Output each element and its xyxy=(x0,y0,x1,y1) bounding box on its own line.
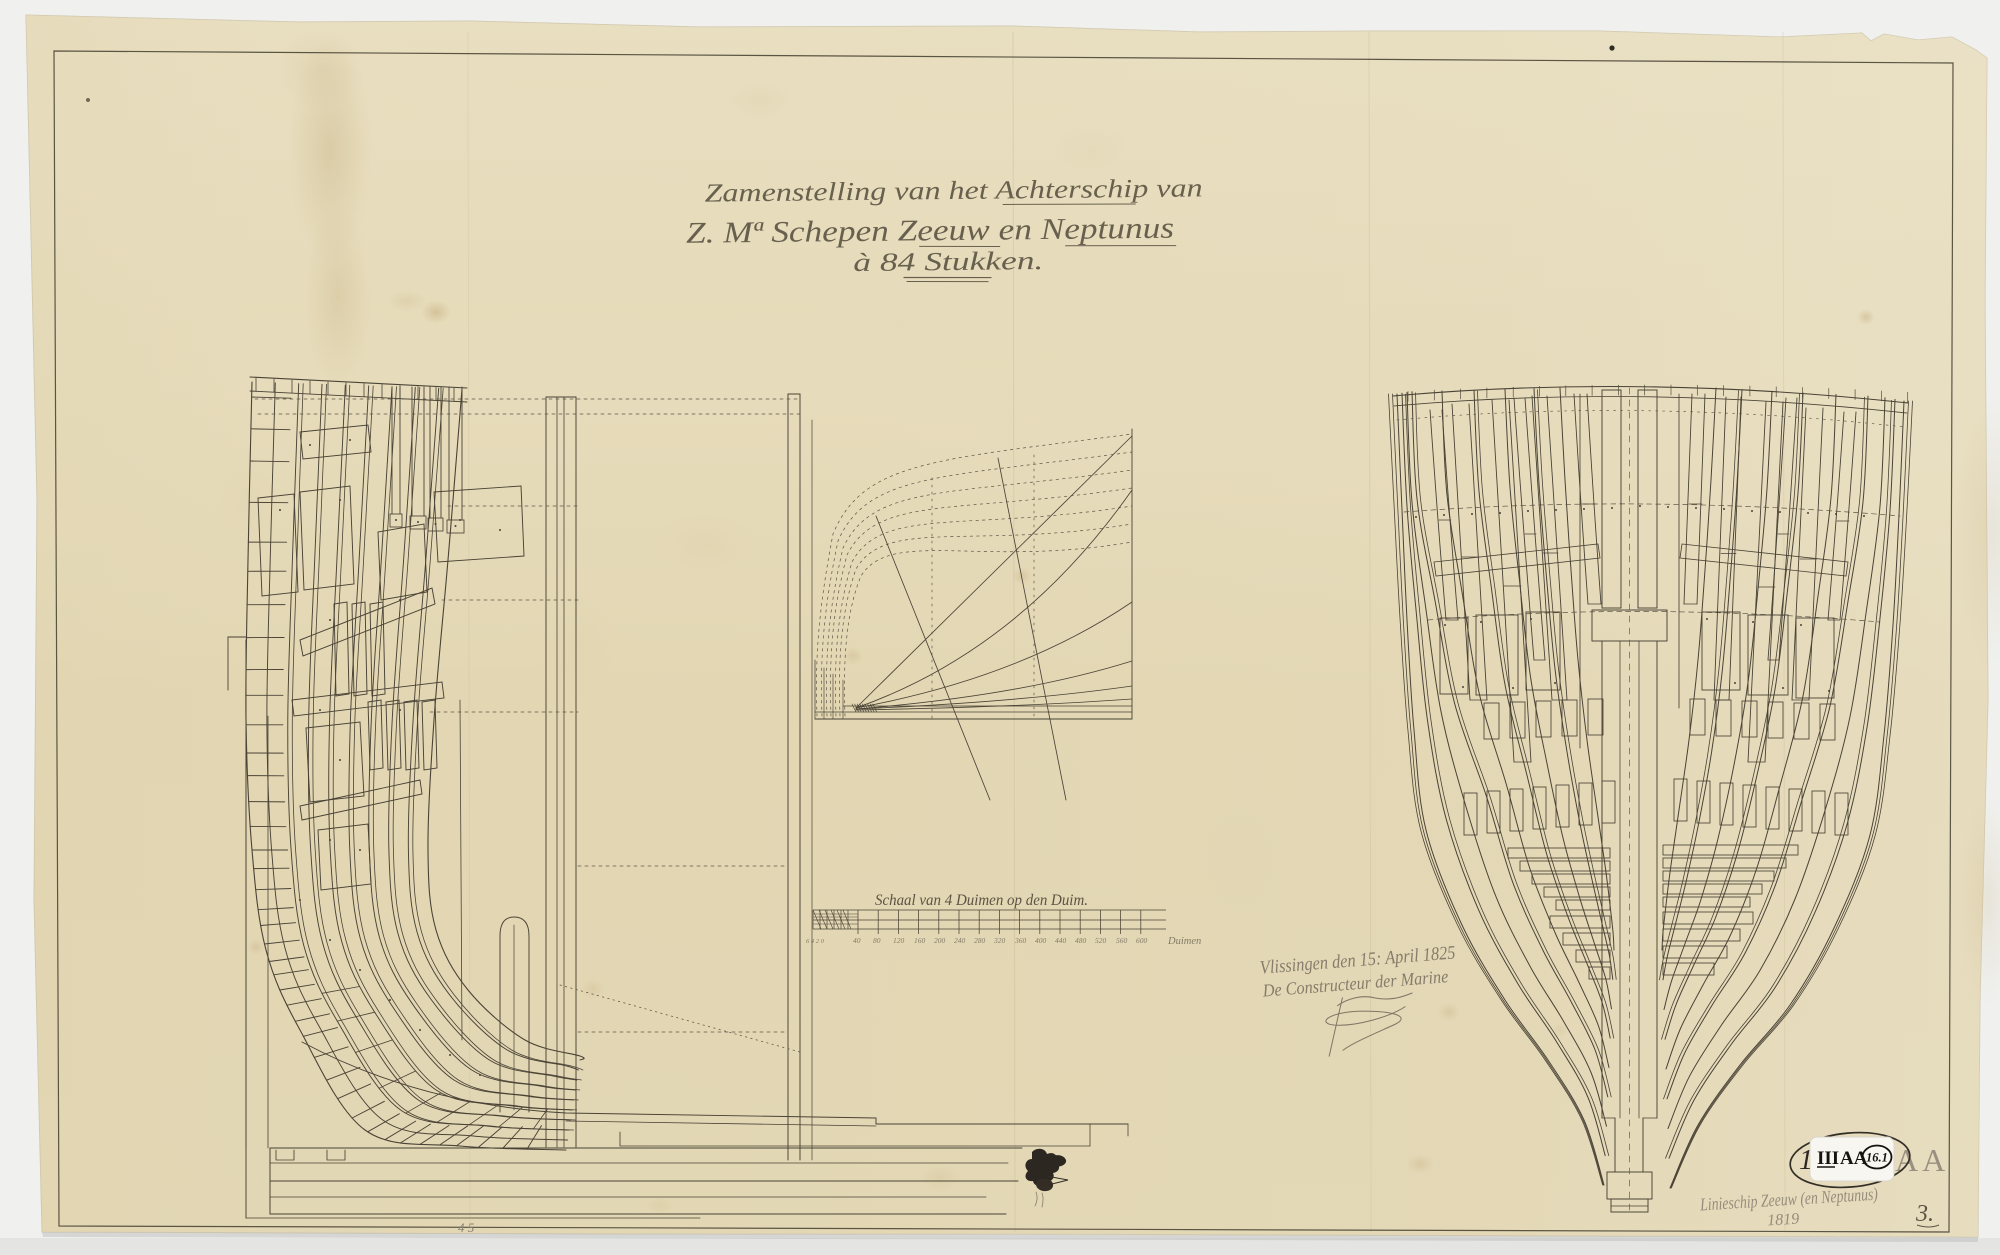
svg-text:80: 80 xyxy=(873,936,881,945)
svg-text:440: 440 xyxy=(1055,936,1067,945)
svg-text:600: 600 xyxy=(1136,936,1148,945)
svg-text:200: 200 xyxy=(934,936,946,945)
svg-text:Zamenstelling van het Achtersc: Zamenstelling van het Achterschip van xyxy=(704,173,1202,207)
svg-text:4 5: 4 5 xyxy=(458,1220,475,1235)
svg-text:40: 40 xyxy=(853,936,861,945)
svg-text:6 4 2 0: 6 4 2 0 xyxy=(806,938,825,945)
svg-text:280: 280 xyxy=(974,936,986,945)
svg-text:160: 160 xyxy=(914,936,926,945)
svg-text:Z. Mª Schepen Zeeuw en Neptunu: Z. Mª Schepen Zeeuw en Neptunus xyxy=(686,212,1174,250)
svg-text:240: 240 xyxy=(954,936,966,945)
svg-text:360: 360 xyxy=(1014,936,1027,945)
svg-text:AA: AA xyxy=(1895,1142,1949,1178)
svg-text:1819: 1819 xyxy=(1767,1210,1800,1229)
svg-text:400: 400 xyxy=(1035,936,1047,945)
svg-text:480: 480 xyxy=(1075,936,1087,945)
svg-text:520: 520 xyxy=(1095,936,1107,945)
svg-text:320: 320 xyxy=(993,936,1006,945)
svg-text:à 84 Stukken.: à 84 Stukken. xyxy=(853,246,1043,277)
svg-text:3.: 3. xyxy=(1915,1201,1934,1227)
svg-text:III: III xyxy=(1817,1148,1839,1169)
svg-text:16.1: 16.1 xyxy=(1866,1151,1888,1165)
svg-text:Duimen: Duimen xyxy=(1167,936,1201,947)
svg-text:Schaal van 4 Duimen op den Dui: Schaal van 4 Duimen op den Duim. xyxy=(875,892,1088,909)
svg-text:120: 120 xyxy=(893,936,905,945)
svg-text:560: 560 xyxy=(1116,936,1128,945)
svg-text:1: 1 xyxy=(1799,1145,1813,1176)
